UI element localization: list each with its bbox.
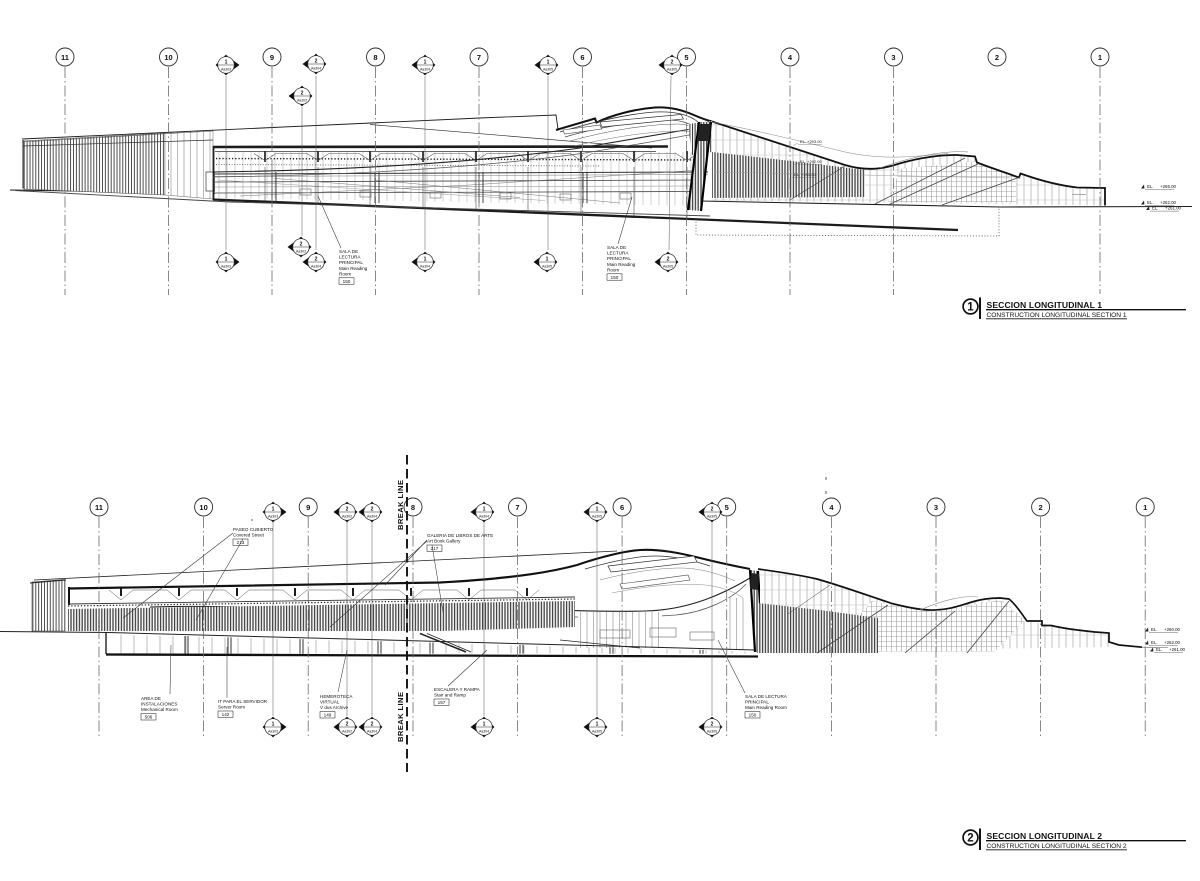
svg-text:506: 506 xyxy=(145,715,153,720)
svg-text:Main Reading: Main Reading xyxy=(339,266,368,271)
svg-text:Aa303: Aa303 xyxy=(221,67,231,71)
svg-text:+262.00: +262.00 xyxy=(1164,640,1181,645)
svg-text:1: 1 xyxy=(547,59,550,65)
svg-text:3: 3 xyxy=(891,53,895,62)
svg-text:1: 1 xyxy=(424,256,427,262)
svg-text:Aa303: Aa303 xyxy=(268,729,278,733)
svg-text:VIRTUAL: VIRTUAL xyxy=(320,700,340,705)
svg-text:Main Reading: Main Reading xyxy=(607,262,636,267)
svg-text:EL.: EL. xyxy=(1156,647,1163,652)
svg-text:10: 10 xyxy=(164,53,172,62)
svg-text:1: 1 xyxy=(483,721,486,727)
svg-text:SALA DE: SALA DE xyxy=(339,249,358,254)
svg-text:Aa305: Aa305 xyxy=(707,729,717,733)
svg-text:7: 7 xyxy=(477,53,481,62)
svg-text:1: 1 xyxy=(225,256,228,262)
svg-text:1: 1 xyxy=(596,506,599,512)
svg-text:SALA DE: SALA DE xyxy=(607,245,626,250)
svg-text:Aa305: Aa305 xyxy=(707,514,717,518)
svg-text:9: 9 xyxy=(306,503,310,512)
svg-text:7: 7 xyxy=(515,503,519,512)
svg-text:1: 1 xyxy=(424,59,427,65)
svg-text:5: 5 xyxy=(725,503,729,512)
svg-text:1: 1 xyxy=(1098,53,1102,62)
svg-text:1: 1 xyxy=(483,506,486,512)
svg-text:PRINCIPAL: PRINCIPAL xyxy=(745,700,769,705)
svg-text:INSTALACIONES: INSTALACIONES xyxy=(141,702,177,707)
svg-text:Aa305: Aa305 xyxy=(543,67,553,71)
svg-text:8: 8 xyxy=(411,503,415,512)
svg-text:2: 2 xyxy=(315,58,318,64)
svg-text:3: 3 xyxy=(934,503,938,512)
svg-text:SALA DE LECTURA: SALA DE LECTURA xyxy=(745,694,788,699)
svg-text:2: 2 xyxy=(346,506,349,512)
svg-text:Aa304: Aa304 xyxy=(367,514,377,518)
svg-text:6: 6 xyxy=(580,53,584,62)
svg-text:Aa302: Aa302 xyxy=(297,98,307,102)
svg-text:AREA DE: AREA DE xyxy=(141,696,161,701)
svg-text:CONSTRUCTION LONGITUDINAL SECT: CONSTRUCTION LONGITUDINAL SECTION 2 xyxy=(987,843,1127,850)
svg-text:2: 2 xyxy=(1039,503,1043,512)
svg-text:Aa304: Aa304 xyxy=(479,729,489,733)
svg-text:217: 217 xyxy=(431,546,439,551)
svg-text:EL.: EL. xyxy=(1147,200,1154,205)
svg-text:EL.: EL. xyxy=(1152,206,1159,211)
svg-text:2: 2 xyxy=(967,833,973,845)
svg-text:1: 1 xyxy=(272,506,275,512)
svg-text:Room: Room xyxy=(607,267,619,272)
svg-text:2: 2 xyxy=(371,721,374,727)
svg-text:EL. +293.00: EL. +293.00 xyxy=(800,139,822,144)
svg-text:Aa305: Aa305 xyxy=(663,264,673,268)
svg-text:10: 10 xyxy=(199,503,207,512)
svg-text:+262.00: +262.00 xyxy=(1160,200,1177,205)
svg-text:Aa303: Aa303 xyxy=(268,514,278,518)
svg-text:2: 2 xyxy=(346,721,349,727)
svg-text:HEMEROTECA: HEMEROTECA xyxy=(320,694,353,699)
svg-text:2: 2 xyxy=(711,721,714,727)
svg-text:1: 1 xyxy=(967,302,974,314)
svg-text:11: 11 xyxy=(61,53,69,62)
svg-text:EL.: EL. xyxy=(1151,640,1158,645)
svg-text:2: 2 xyxy=(711,506,714,512)
svg-text:11: 11 xyxy=(95,503,103,512)
svg-text:Aa304: Aa304 xyxy=(311,66,321,70)
svg-text:157: 157 xyxy=(438,700,446,705)
svg-text:EL.: EL. xyxy=(1147,184,1154,189)
svg-text:BREAK LINE: BREAK LINE xyxy=(396,480,405,530)
svg-text:Aa303: Aa303 xyxy=(221,264,231,268)
svg-text:PRINCIPAL: PRINCIPAL xyxy=(607,256,631,261)
svg-text:2: 2 xyxy=(300,241,303,247)
svg-text:LECTURA: LECTURA xyxy=(339,255,361,260)
svg-text:9: 9 xyxy=(270,53,274,62)
svg-text:2: 2 xyxy=(995,53,999,62)
svg-text:V dus Archive: V dus Archive xyxy=(320,705,349,710)
svg-text:150: 150 xyxy=(611,275,619,280)
svg-text:EL.: EL. xyxy=(1151,627,1158,632)
svg-text:Aa304: Aa304 xyxy=(420,264,430,268)
svg-text:PASEO CUBIERTO: PASEO CUBIERTO xyxy=(233,527,274,532)
svg-text:2: 2 xyxy=(301,90,304,96)
svg-text:1: 1 xyxy=(225,59,228,65)
svg-text:Aa305: Aa305 xyxy=(592,729,602,733)
svg-text:SECCION LONGITUDINAL 2: SECCION LONGITUDINAL 2 xyxy=(987,831,1103,841)
svg-text:2: 2 xyxy=(671,59,674,65)
svg-text:1: 1 xyxy=(1143,503,1147,512)
svg-text:Aa302: Aa302 xyxy=(296,249,306,253)
svg-text:Aa304: Aa304 xyxy=(479,514,489,518)
svg-text:CONSTRUCTION LONGITUDINAL SECT: CONSTRUCTION LONGITUDINAL SECTION 1 xyxy=(987,312,1127,319)
svg-text:Stair and Ramp: Stair and Ramp xyxy=(434,693,466,698)
svg-text:GALERIA DE LIBROS DE ARTE: GALERIA DE LIBROS DE ARTE xyxy=(427,533,493,538)
svg-text:Aa305: Aa305 xyxy=(592,514,602,518)
svg-text:150: 150 xyxy=(343,279,351,284)
svg-text:2: 2 xyxy=(667,256,670,262)
svg-text:Aa304: Aa304 xyxy=(420,67,430,71)
svg-text:6: 6 xyxy=(620,503,624,512)
svg-text:+261.00: +261.00 xyxy=(1169,647,1186,652)
svg-text:2: 2 xyxy=(315,256,318,262)
svg-text:2: 2 xyxy=(371,506,374,512)
svg-text:1: 1 xyxy=(596,721,599,727)
svg-text:+265.00: +265.00 xyxy=(1160,184,1177,189)
svg-text:Main Reading Room: Main Reading Room xyxy=(745,705,787,710)
svg-text:Art Book Gallery: Art Book Gallery xyxy=(427,539,461,544)
svg-text:LECTURA: LECTURA xyxy=(607,251,629,256)
svg-text:IT PARA EL SERVIDOR: IT PARA EL SERVIDOR xyxy=(218,699,268,704)
svg-text:Aa304: Aa304 xyxy=(311,264,321,268)
svg-text:5: 5 xyxy=(684,53,688,62)
svg-text:150: 150 xyxy=(749,713,757,718)
svg-text:Server Room: Server Room xyxy=(218,705,245,710)
svg-text:Aa305: Aa305 xyxy=(542,264,552,268)
svg-text:1: 1 xyxy=(272,721,275,727)
svg-text:+261.00: +261.00 xyxy=(1165,206,1182,211)
svg-text:Aa304: Aa304 xyxy=(367,729,377,733)
svg-text:ESCALERA Y RAMPA: ESCALERA Y RAMPA xyxy=(434,687,481,692)
svg-text:8: 8 xyxy=(373,53,377,62)
svg-text:BREAK LINE: BREAK LINE xyxy=(396,692,405,742)
svg-text:SECCION LONGITUDINAL 1: SECCION LONGITUDINAL 1 xyxy=(987,300,1103,310)
svg-text:Aa305: Aa305 xyxy=(667,67,677,71)
svg-text:PRINCIPAL: PRINCIPAL xyxy=(339,260,363,265)
svg-text:+260.00: +260.00 xyxy=(1164,627,1181,632)
svg-text:1: 1 xyxy=(546,256,549,262)
svg-text:Aa302: Aa302 xyxy=(342,514,352,518)
svg-text:Aa302: Aa302 xyxy=(342,729,352,733)
svg-text:Covered Street: Covered Street xyxy=(233,533,265,538)
svg-text:Room: Room xyxy=(339,271,351,276)
svg-text:149: 149 xyxy=(324,713,332,718)
svg-text:Mechanical Room: Mechanical Room xyxy=(141,707,178,712)
svg-text:EL. +291.50: EL. +291.50 xyxy=(794,172,816,177)
svg-text:142: 142 xyxy=(222,712,230,717)
svg-text:EL. +292.00: EL. +292.00 xyxy=(800,159,822,164)
